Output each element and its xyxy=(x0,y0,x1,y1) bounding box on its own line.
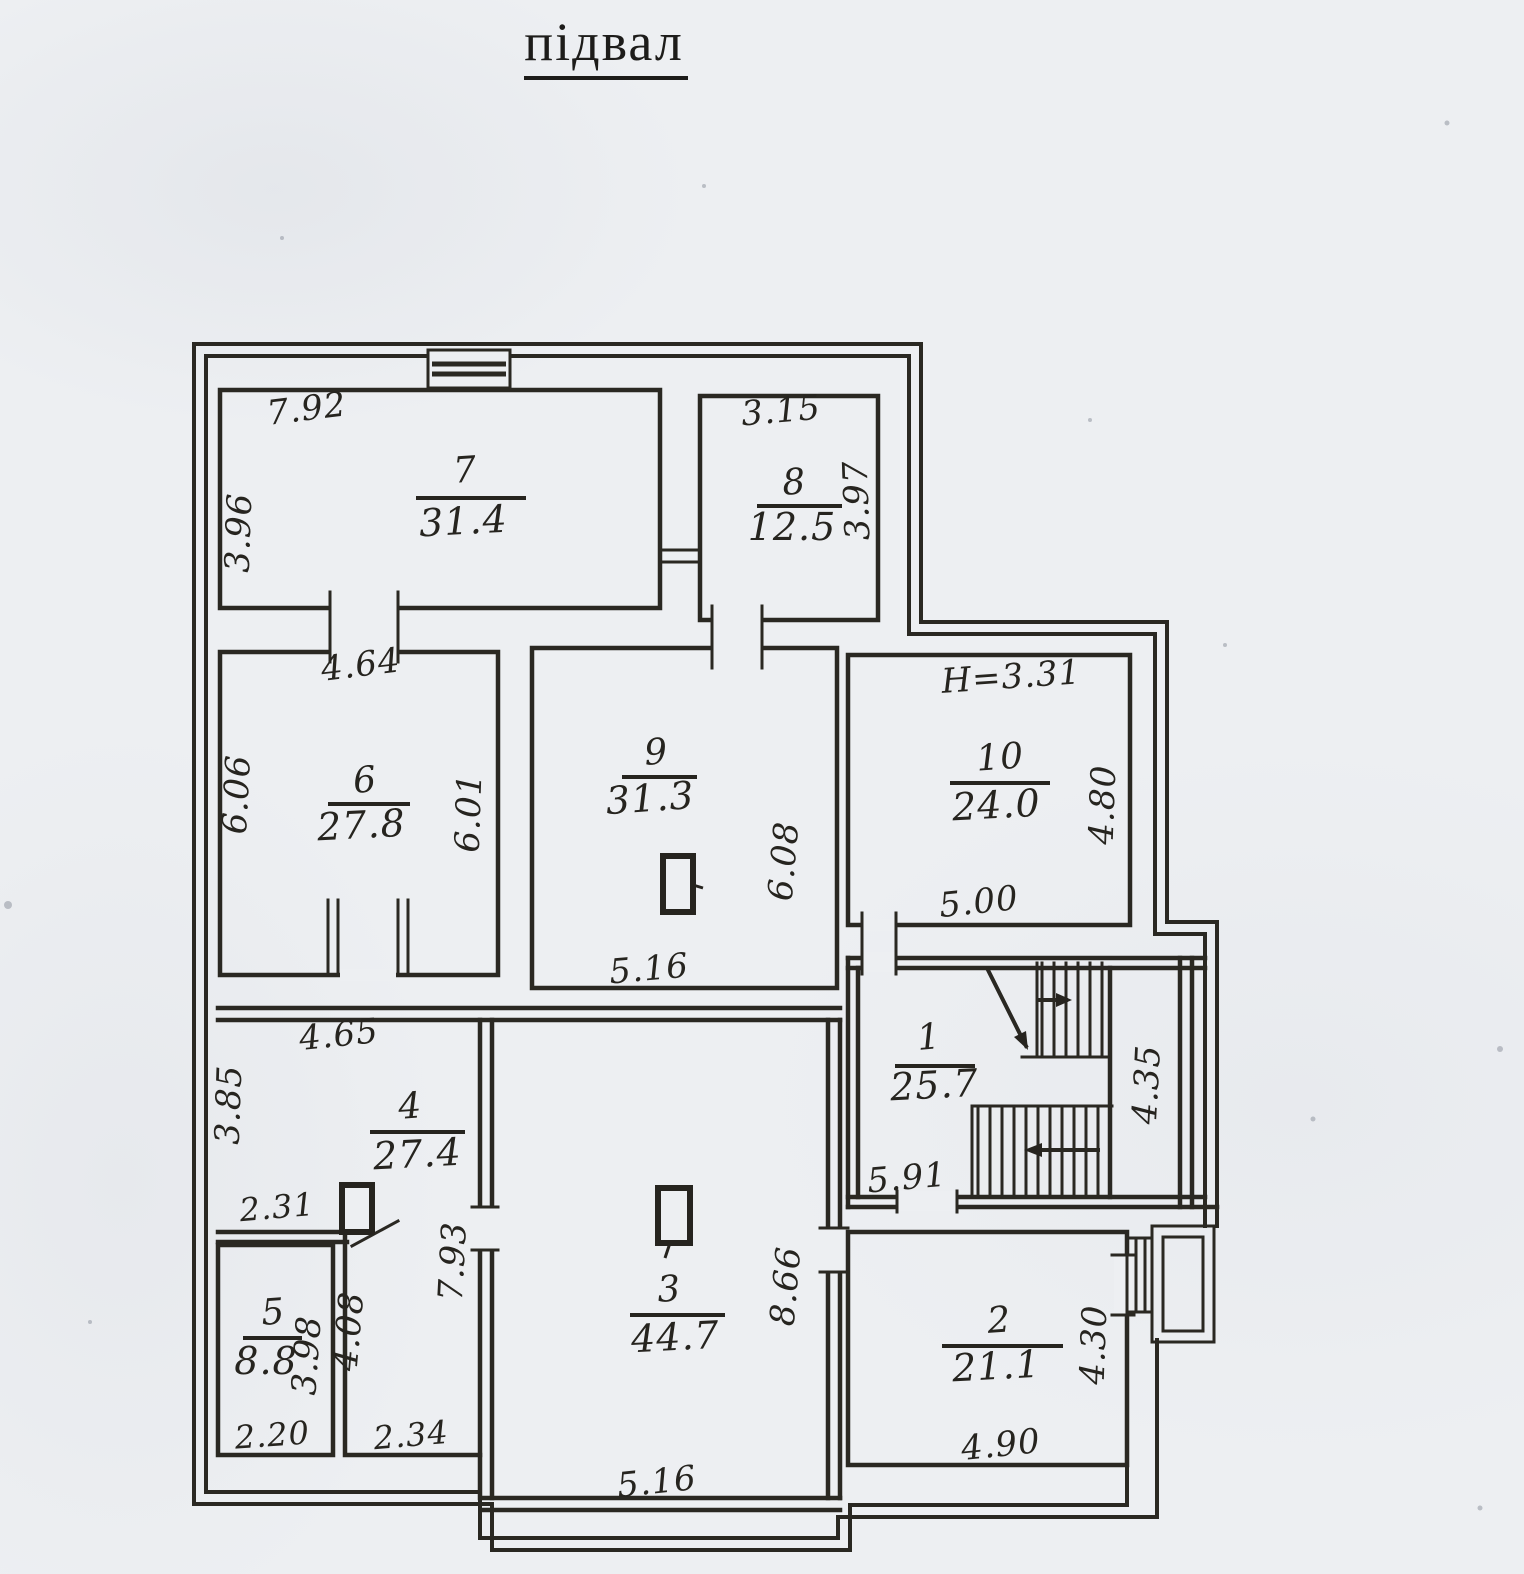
room-3-area: 44.7 xyxy=(629,1313,721,1362)
door-threshold-room7-room8 xyxy=(660,550,700,562)
staircase xyxy=(972,963,1112,1196)
stair-strip-right-wall xyxy=(1180,958,1192,1207)
dim-room8-top: 3.15 xyxy=(740,388,823,435)
stairwell-left-wall xyxy=(848,958,858,1207)
dim-room6-left: 6.06 xyxy=(215,754,259,836)
room-6-number: 6 xyxy=(351,759,378,802)
dim-stair-strip-right: 4.35 xyxy=(1125,1044,1169,1127)
outer-wall-bottom-left xyxy=(194,1492,492,1504)
room-1-label: 1 25.7 xyxy=(888,1016,980,1109)
room-4-number: 4 xyxy=(396,1085,424,1128)
outer-wall-right-upper xyxy=(909,344,921,634)
dim-corridor-height: 4.08 xyxy=(326,1290,373,1374)
dim-room1-bottom: 5.91 xyxy=(866,1155,949,1202)
dim-room2-right: 4.30 xyxy=(1073,1304,1116,1386)
outer-wall-step-down xyxy=(480,1492,492,1550)
dim-room10-height-note: H=3.31 xyxy=(939,652,1082,702)
dim-room4-top: 4.65 xyxy=(296,1011,380,1059)
dim-room3-bottom: 5.16 xyxy=(615,1458,698,1506)
dim-room3-right: 8.66 xyxy=(763,1245,810,1328)
floor-plan-drawing: підвал xyxy=(0,0,1524,1574)
room-4-area: 27.4 xyxy=(371,1130,463,1179)
dim-room4-bottom-left: 2.31 xyxy=(237,1185,316,1230)
window-hatch xyxy=(428,350,510,388)
dim-corridor-bottom: 2.34 xyxy=(371,1413,450,1458)
page-title: підвал xyxy=(524,12,684,72)
dim-room6-right: 6.01 xyxy=(448,772,491,853)
column-room3 xyxy=(658,1188,690,1243)
dim-room4-left: 3.85 xyxy=(208,1064,251,1145)
outer-wall-bottom-right xyxy=(838,1505,1157,1517)
dim-room5-right: 3.98 xyxy=(284,1314,329,1396)
dim-room6-top: 4.64 xyxy=(318,640,403,690)
dim-room10-bottom: 5.00 xyxy=(937,878,1020,926)
room-9-number: 9 xyxy=(643,731,670,774)
room-7-area: 31.4 xyxy=(418,497,509,546)
dim-room10-right: 4.80 xyxy=(1082,764,1125,846)
outer-wall-below-entrance xyxy=(1127,1340,1157,1517)
exterior-entrance xyxy=(1127,1226,1214,1342)
outer-wall-top xyxy=(194,344,921,356)
column-room9 xyxy=(663,856,693,912)
room6-wall-stubs xyxy=(328,900,408,975)
room-1-area: 25.7 xyxy=(888,1061,980,1110)
room-7-label: 7 31.4 xyxy=(416,449,526,545)
room-2-number: 2 xyxy=(985,1299,1013,1342)
outer-wall-jog xyxy=(1155,922,1217,934)
floor-title: підвал xyxy=(524,12,688,78)
room-3-label: 3 44.7 xyxy=(629,1268,725,1361)
room-3-number: 3 xyxy=(656,1268,683,1311)
entrance-vestibule-outer xyxy=(1152,1226,1214,1342)
outer-wall-notch xyxy=(909,622,1167,634)
stair-arrow-right-icon xyxy=(1056,993,1072,1007)
room-5-number: 5 xyxy=(260,1291,287,1334)
outer-wall-right-middle xyxy=(1155,622,1167,934)
stairs-upper-flight xyxy=(1022,963,1108,1057)
room-10-area: 24.0 xyxy=(950,781,1042,830)
room-9-walls xyxy=(532,648,837,988)
room-10-label: 10 24.0 xyxy=(950,735,1050,829)
dim-room2-bottom: 4.90 xyxy=(958,1421,1042,1469)
room-labels: 7 31.4 8 12.5 6 27.8 9 31.3 10 24.0 4 27… xyxy=(234,449,1063,1390)
dim-room7-left: 3.96 xyxy=(218,492,261,573)
scanned-floor-plan-page: підвал xyxy=(0,0,1524,1574)
room-6-label: 6 27.8 xyxy=(315,759,410,849)
dim-corridor-wall: 7.93 xyxy=(431,1221,475,1303)
room-6-area: 27.8 xyxy=(315,801,407,850)
dim-room9-bottom: 5.16 xyxy=(608,946,691,993)
column-room4 xyxy=(342,1185,372,1232)
room-4-label: 4 27.4 xyxy=(370,1085,465,1178)
room-9-label: 9 31.3 xyxy=(604,731,697,823)
columns xyxy=(342,856,703,1258)
dim-room5-bottom: 2.20 xyxy=(232,1413,311,1456)
stair-arrow-down-icon xyxy=(1014,1031,1028,1050)
room-8-number: 8 xyxy=(781,461,808,504)
room3-left-wall xyxy=(480,1020,492,1498)
dim-room9-right: 6.08 xyxy=(761,820,808,903)
room-1-number: 1 xyxy=(915,1016,942,1059)
room-8-area: 12.5 xyxy=(748,505,837,549)
outer-wall-bottom-protrusion xyxy=(480,1538,850,1550)
room-10-number: 10 xyxy=(975,735,1026,779)
dim-room7-top: 7.92 xyxy=(265,384,349,433)
stairwell-top-wall xyxy=(848,958,1205,968)
room-2-label: 2 21.1 xyxy=(942,1299,1063,1390)
room-2-area: 21.1 xyxy=(950,1342,1042,1391)
room-9-area: 31.3 xyxy=(604,773,695,823)
room4-bottom-wall xyxy=(218,1232,347,1242)
dim-room8-right: 3.97 xyxy=(836,460,879,541)
room-8-label: 8 12.5 xyxy=(748,461,842,549)
room-7-number: 7 xyxy=(452,449,479,492)
outer-wall-left xyxy=(194,344,206,1504)
entrance-vestibule-inner xyxy=(1163,1237,1203,1331)
